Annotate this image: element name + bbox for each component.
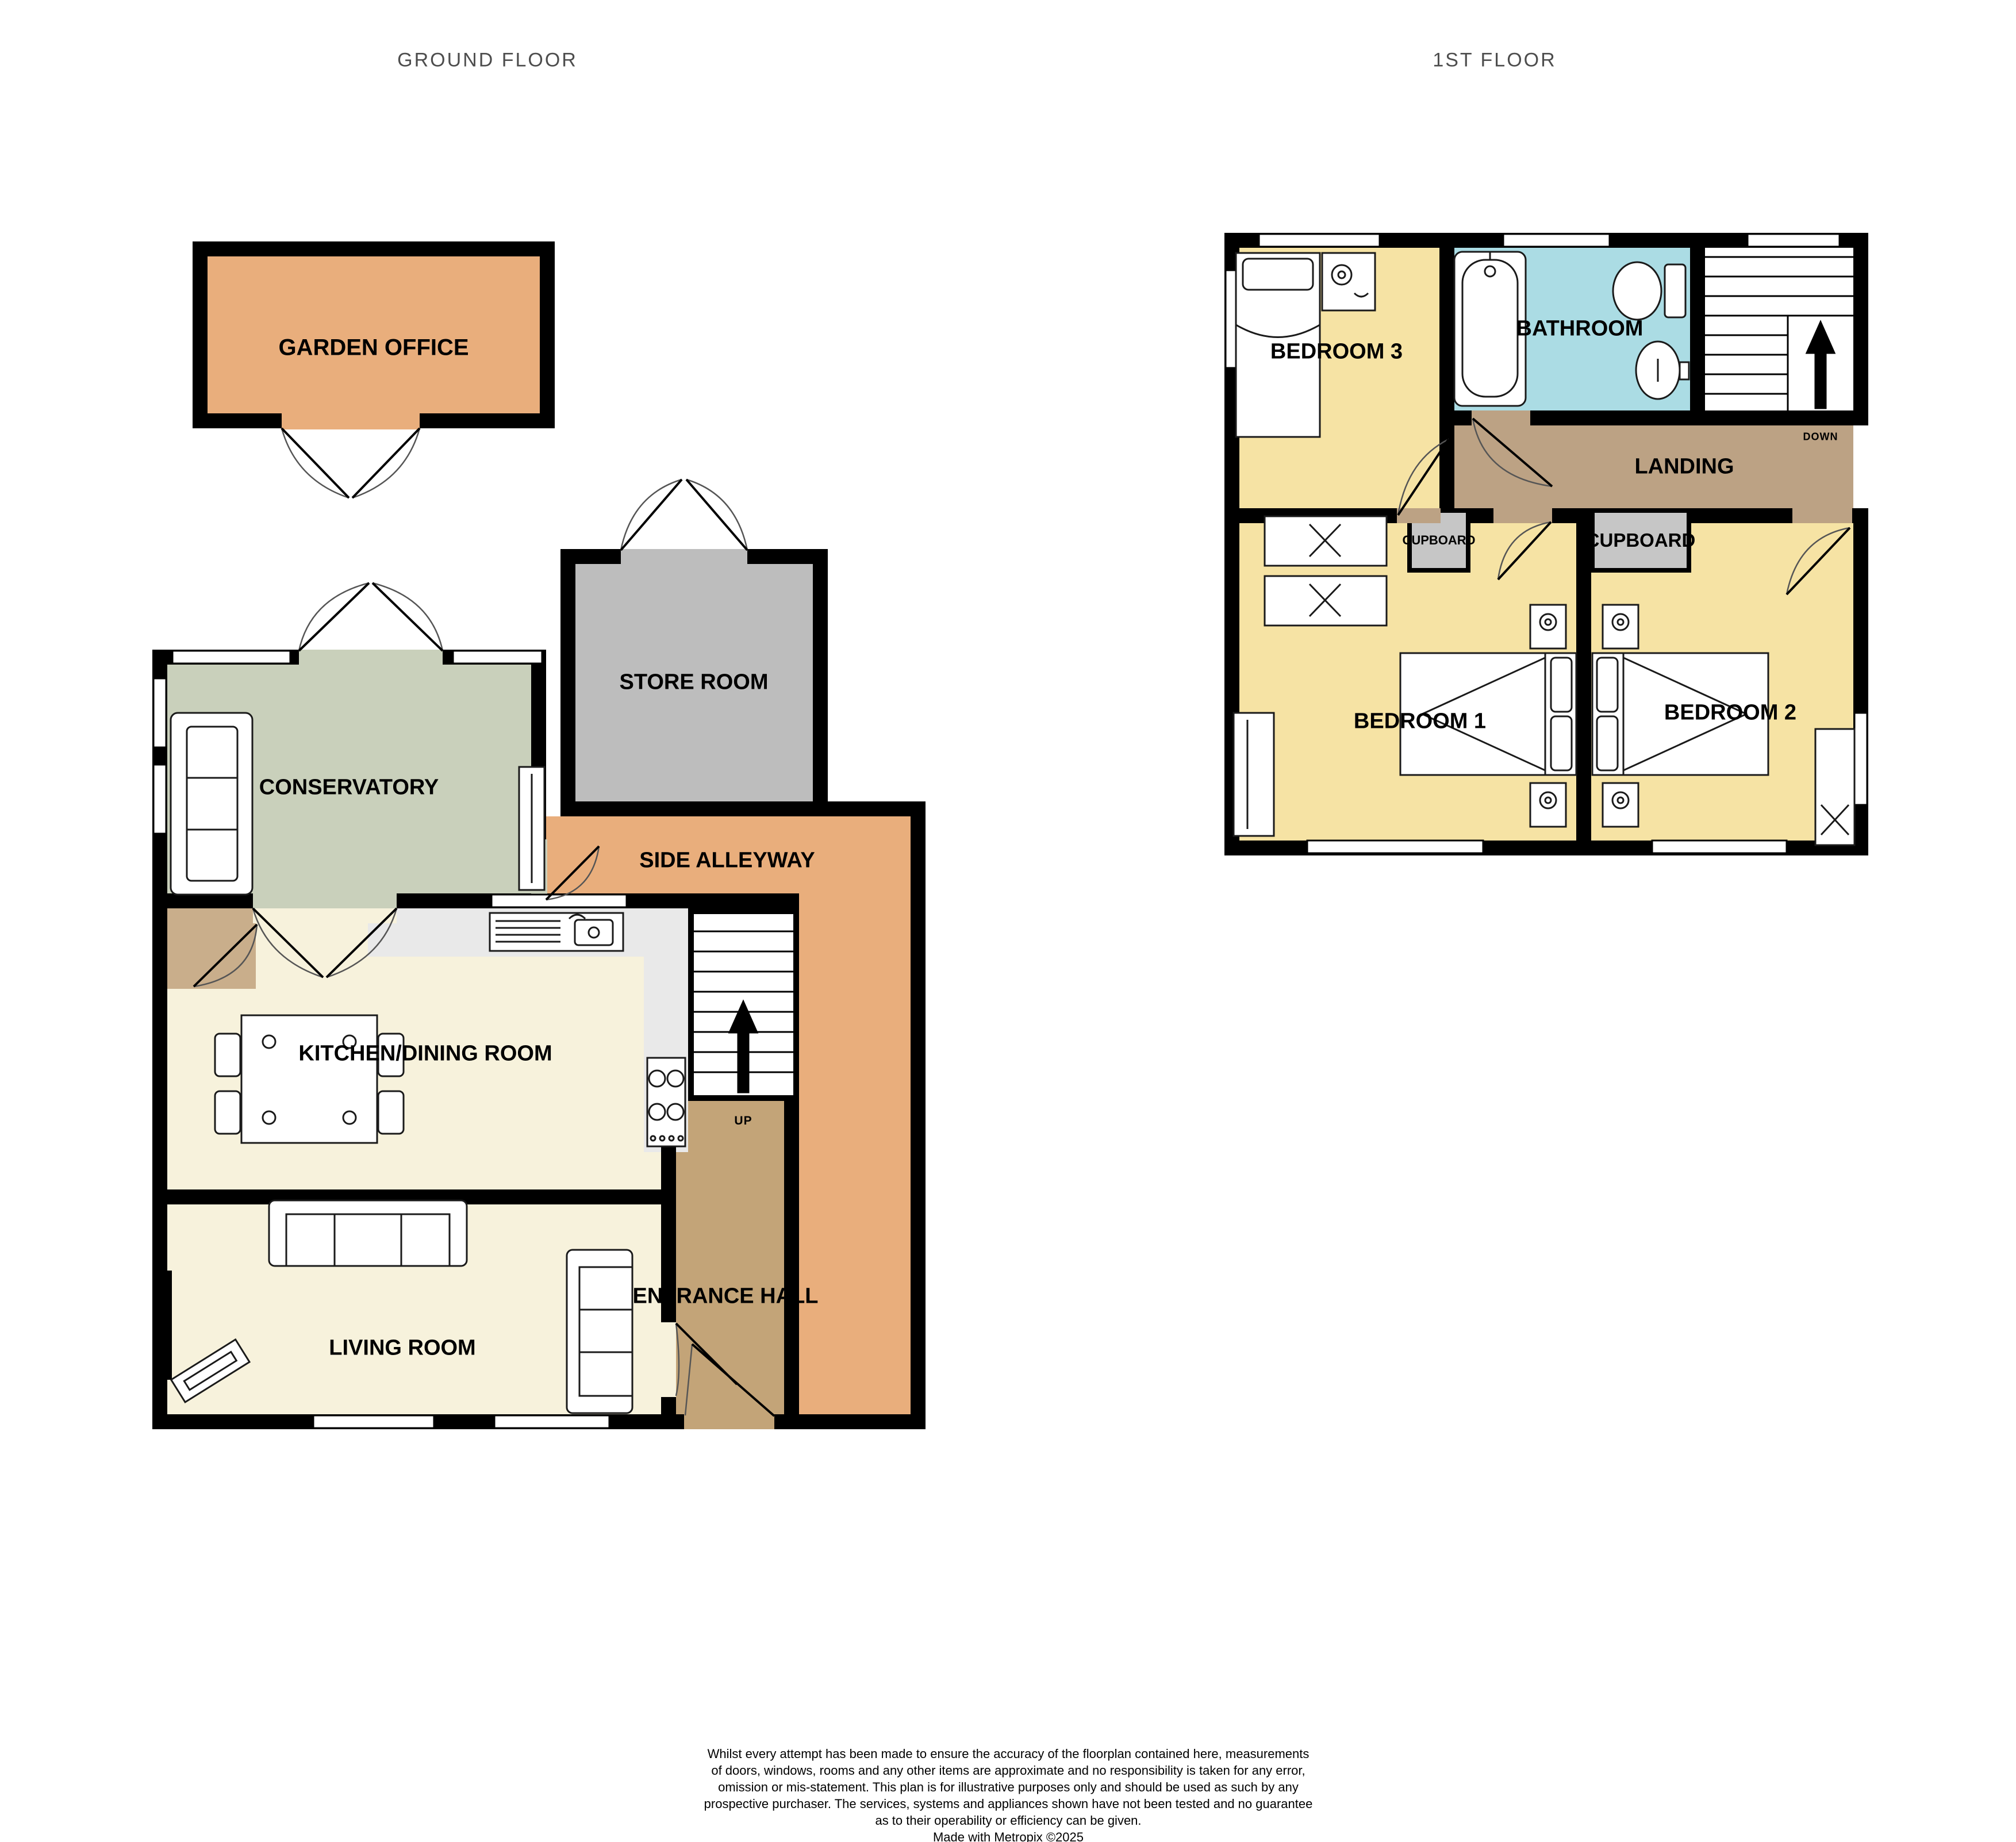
conservatory-top-door-gap bbox=[299, 650, 443, 665]
bedroom-1-window bbox=[1307, 841, 1483, 853]
first-floor-title: 1ST FLOOR bbox=[1433, 49, 1556, 72]
stairs-window bbox=[1748, 234, 1840, 247]
disclaimer-line: of doors, windows, rooms and any other i… bbox=[646, 1762, 1370, 1779]
furniture bbox=[171, 252, 1854, 1413]
garden-office-door-gap bbox=[282, 413, 420, 429]
disclaimer-line: as to their operability or efficiency ca… bbox=[646, 1812, 1370, 1829]
conservatory-top-leaf-r bbox=[373, 583, 443, 651]
bedroom-2-side-table bbox=[1815, 729, 1854, 845]
garden-office-label: GARDEN OFFICE bbox=[278, 335, 469, 361]
bathroom-door-leaf bbox=[1473, 419, 1552, 486]
store-door-leaf-l bbox=[621, 479, 682, 550]
stairs-ground-graphics bbox=[694, 931, 793, 1092]
conservatory-sofa bbox=[171, 713, 252, 895]
bedroom-3-door-leaf bbox=[1398, 439, 1449, 515]
hall-living-door-arc bbox=[676, 1323, 679, 1396]
living-room-window-2 bbox=[494, 1415, 609, 1428]
bathroom-window bbox=[1503, 234, 1610, 247]
bedroom-2-label: BEDROOM 2 bbox=[1664, 701, 1796, 726]
stairs-first-graphics bbox=[1705, 257, 1853, 410]
front-door-arc bbox=[685, 1344, 692, 1415]
living-sofa-right bbox=[567, 1250, 632, 1413]
conservatory-window-top-right bbox=[453, 651, 542, 663]
bedroom-3-door-gap bbox=[1397, 508, 1441, 523]
bedroom-1-desk bbox=[1265, 576, 1387, 625]
bedroom-3-bedside-unit bbox=[1322, 253, 1375, 310]
side-alleyway-label: SIDE ALLEYWAY bbox=[639, 849, 815, 873]
up-arrow-head bbox=[729, 1001, 757, 1033]
down-arrow-stem bbox=[1815, 352, 1826, 408]
conservatory-bottom-door-gap-b bbox=[253, 908, 397, 923]
bedroom-1-chest bbox=[1265, 516, 1387, 566]
bedroom-1-bench bbox=[1234, 713, 1274, 836]
store-room-label: STORE ROOM bbox=[620, 670, 769, 695]
conservatory-window-top-left bbox=[172, 651, 290, 663]
living-room-label: LIVING ROOM bbox=[329, 1336, 475, 1361]
up-arrow-stem bbox=[738, 1030, 748, 1092]
conservatory-radiator bbox=[519, 767, 544, 890]
conservatory-top-leaf-l bbox=[299, 583, 369, 651]
disclaimer-line: prospective purchaser. The services, sys… bbox=[646, 1795, 1370, 1812]
conservatory-window-left-2 bbox=[153, 765, 166, 834]
store-room-door-gap bbox=[621, 549, 747, 565]
bathroom-door-gap bbox=[1472, 410, 1530, 425]
front-door-gap bbox=[684, 1414, 774, 1429]
store-door-leaf-r bbox=[686, 479, 747, 550]
garden-office-door-leaf-l bbox=[282, 428, 349, 498]
bedroom-3-label: BEDROOM 3 bbox=[1270, 340, 1403, 364]
plan-graphics bbox=[0, 0, 2016, 1842]
bedroom-1-label: BEDROOM 1 bbox=[1354, 709, 1486, 734]
living-sofa-top bbox=[269, 1200, 467, 1266]
bedroom-1-door-gap bbox=[1493, 508, 1552, 523]
bathroom-sink bbox=[1636, 341, 1689, 399]
bedroom-3-window bbox=[1259, 234, 1380, 247]
conservatory-bottom-door-gap-a bbox=[253, 893, 397, 908]
ground-floor-title: GROUND FLOOR bbox=[397, 49, 578, 72]
bedroom-2-window-right bbox=[1854, 713, 1867, 805]
disclaimer-credit: Made with Metropix ©2025 bbox=[646, 1829, 1370, 1842]
landing-label: LANDING bbox=[1634, 455, 1734, 479]
conservatory-label: CONSERVATORY bbox=[259, 776, 439, 800]
kitchen-hob bbox=[647, 1058, 685, 1146]
kitchen-sink bbox=[490, 913, 623, 951]
hall-living-door-leaf bbox=[676, 1323, 737, 1384]
down-arrow-head bbox=[1807, 322, 1834, 353]
disclaimer-line: omission or mis-statement. This plan is … bbox=[646, 1779, 1370, 1795]
conservatory-window-left-1 bbox=[153, 678, 166, 747]
bedroom-2-door-leaf bbox=[1787, 528, 1850, 594]
stairs-up-label: UP bbox=[734, 1114, 752, 1128]
living-tv bbox=[171, 1340, 249, 1402]
bedroom-2-window bbox=[1652, 841, 1787, 853]
bathroom-label: BATHROOM bbox=[1516, 317, 1643, 341]
dining-table bbox=[241, 1015, 377, 1143]
bedroom-2-door-gap bbox=[1792, 508, 1852, 523]
stairs-down-label: DOWN bbox=[1803, 431, 1838, 443]
bathtub bbox=[1454, 252, 1526, 406]
garden-office-door-leaf-r bbox=[352, 428, 420, 498]
kitchen-dining-label: KITCHEN/DINING ROOM bbox=[298, 1042, 552, 1066]
disclaimer: Whilst every attempt has been made to en… bbox=[646, 1745, 1370, 1842]
floorplan-canvas: GROUND FLOOR 1ST FLOOR ENTRANCE HALL GAR… bbox=[0, 0, 2016, 1842]
disclaimer-line: Whilst every attempt has been made to en… bbox=[646, 1745, 1370, 1762]
toilet bbox=[1613, 262, 1685, 320]
living-room-window-1 bbox=[313, 1415, 434, 1428]
bedroom-1-door-leaf bbox=[1498, 522, 1551, 580]
